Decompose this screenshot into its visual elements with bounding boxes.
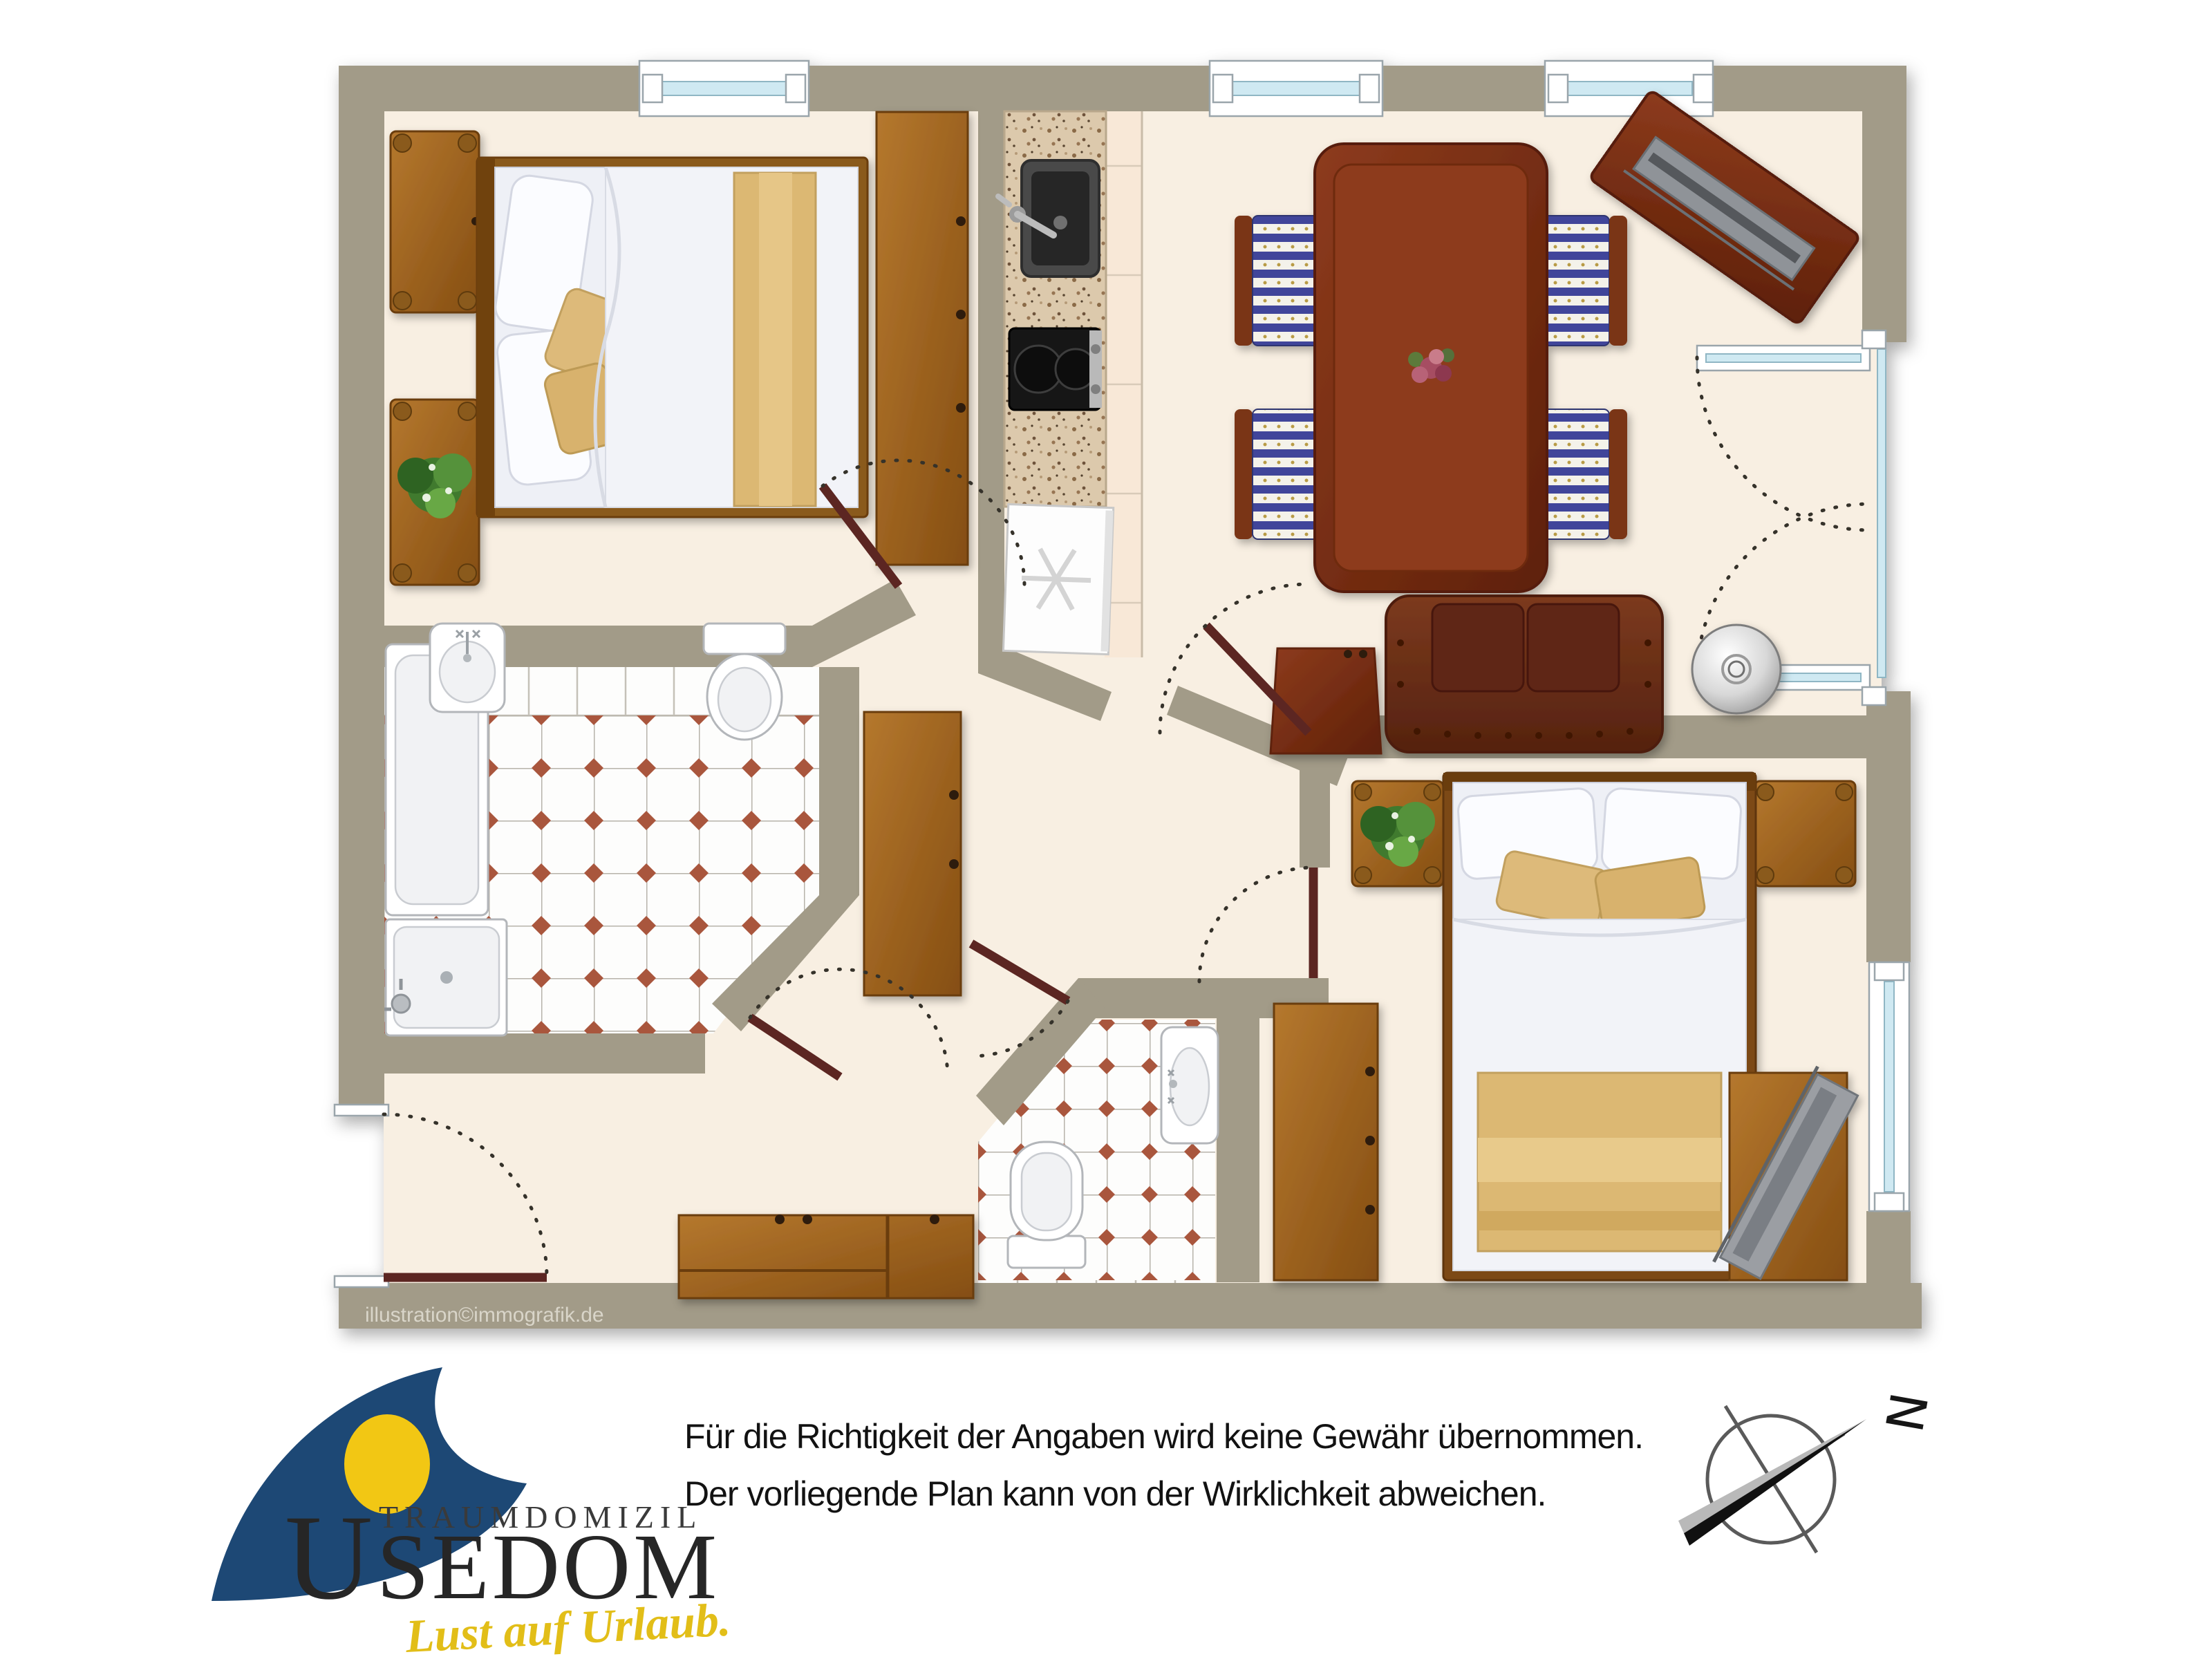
bed-bedroom1	[477, 158, 868, 517]
shower	[384, 919, 507, 1035]
nightstand-bedroom1-top	[391, 131, 480, 312]
dining-chair	[1540, 409, 1627, 539]
window-living-left	[1210, 61, 1382, 116]
wardrobe-bedroom2	[1274, 1004, 1378, 1280]
desk-bedroom2	[1714, 1067, 1861, 1285]
compass-north-label: N	[1873, 1388, 1938, 1436]
brand-initial: U	[285, 1490, 373, 1625]
wall-right-bottom	[1866, 1211, 1911, 1329]
window-bedroom2	[1869, 962, 1909, 1211]
decor-disc	[1692, 625, 1781, 713]
entrance-door-frame	[335, 1105, 388, 1287]
nightstand-bedroom1-bottom	[391, 400, 479, 585]
nightstand-bedroom2-left	[1352, 781, 1443, 886]
wall-bathroom1-east	[819, 667, 859, 895]
disclaimer-line2: Der vorliegende Plan kann von der Wirkli…	[684, 1474, 1546, 1513]
wall-bathroom2-east	[1217, 978, 1259, 1282]
toilet-bathroom2	[1008, 1142, 1085, 1268]
dining-table	[1315, 144, 1547, 592]
wall-bedroom2-door-stub	[1300, 758, 1330, 868]
sink-bathroom1	[430, 624, 505, 712]
wall-bathroom1-south	[384, 1033, 705, 1074]
wall-kitchen-divider	[978, 111, 1004, 647]
floor-plan: illustration©immografik.de	[335, 61, 1922, 1329]
wardrobe-bedroom1	[877, 112, 968, 565]
bed-bedroom2	[1443, 773, 1756, 1280]
duvet	[606, 167, 858, 507]
wall-right-top	[1862, 66, 1906, 342]
toilet-bathroom1	[704, 624, 785, 740]
floor-plan-page: illustration©immografik.de U TRAUMDOMIZI…	[0, 0, 2212, 1659]
sofa	[1386, 596, 1662, 752]
dining-chair	[1235, 409, 1322, 539]
watermark-text: illustration©immografik.de	[365, 1304, 604, 1327]
compass-rose: N	[1678, 1388, 1938, 1553]
sink-bathroom2	[1161, 1027, 1218, 1143]
side-table	[1271, 648, 1381, 753]
window-living-right	[1545, 61, 1713, 116]
nightstand-bedroom2-right	[1754, 781, 1855, 886]
wall-left-upper	[339, 66, 384, 1114]
stove	[1009, 328, 1102, 410]
dishwasher	[1003, 504, 1113, 654]
hall-wardrobe	[679, 1215, 973, 1298]
company-logo: U TRAUMDOMIZIL SEDOM Lust auf Urlaub.	[212, 1367, 732, 1659]
window-bedroom1	[639, 61, 809, 116]
footer: U TRAUMDOMIZIL SEDOM Lust auf Urlaub. Fü…	[212, 1367, 1938, 1659]
dining-chair	[1235, 216, 1322, 346]
disclaimer-line1: Für die Richtigkeit der Angaben wird kei…	[684, 1417, 1643, 1456]
disclaimer: Für die Richtigkeit der Angaben wird kei…	[684, 1417, 1643, 1513]
hall-cabinet	[864, 712, 961, 995]
dining-chair	[1540, 216, 1627, 346]
compass-needle-dark	[1684, 1419, 1866, 1546]
